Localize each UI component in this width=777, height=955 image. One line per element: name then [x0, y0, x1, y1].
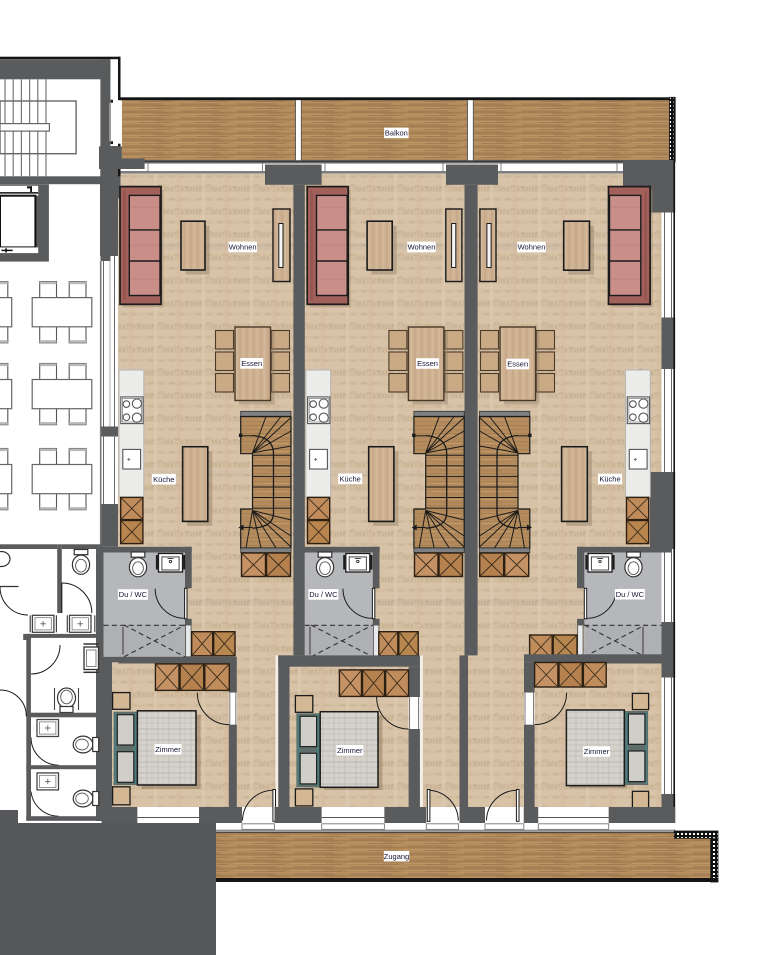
- svg-text:Wohnen: Wohnen: [229, 243, 257, 252]
- svg-text:Essen: Essen: [241, 359, 262, 368]
- svg-text:Essen: Essen: [417, 359, 438, 368]
- svg-text:Du / WC: Du / WC: [309, 590, 338, 599]
- svg-text:Zimmer: Zimmer: [337, 746, 363, 755]
- svg-text:Zugang: Zugang: [384, 852, 409, 861]
- svg-text:Wohnen: Wohnen: [518, 243, 546, 252]
- svg-text:Küche: Küche: [340, 475, 361, 484]
- svg-text:Du / WC: Du / WC: [616, 590, 645, 599]
- svg-text:Du / WC: Du / WC: [119, 590, 148, 599]
- svg-text:Zimmer: Zimmer: [155, 745, 181, 754]
- svg-text:Küche: Küche: [153, 475, 174, 484]
- svg-text:Küche: Küche: [599, 475, 620, 484]
- svg-text:Wohnen: Wohnen: [408, 243, 436, 252]
- svg-text:Essen: Essen: [507, 360, 528, 369]
- svg-text:Zimmer: Zimmer: [584, 747, 610, 756]
- svg-text:Balkon: Balkon: [385, 129, 408, 138]
